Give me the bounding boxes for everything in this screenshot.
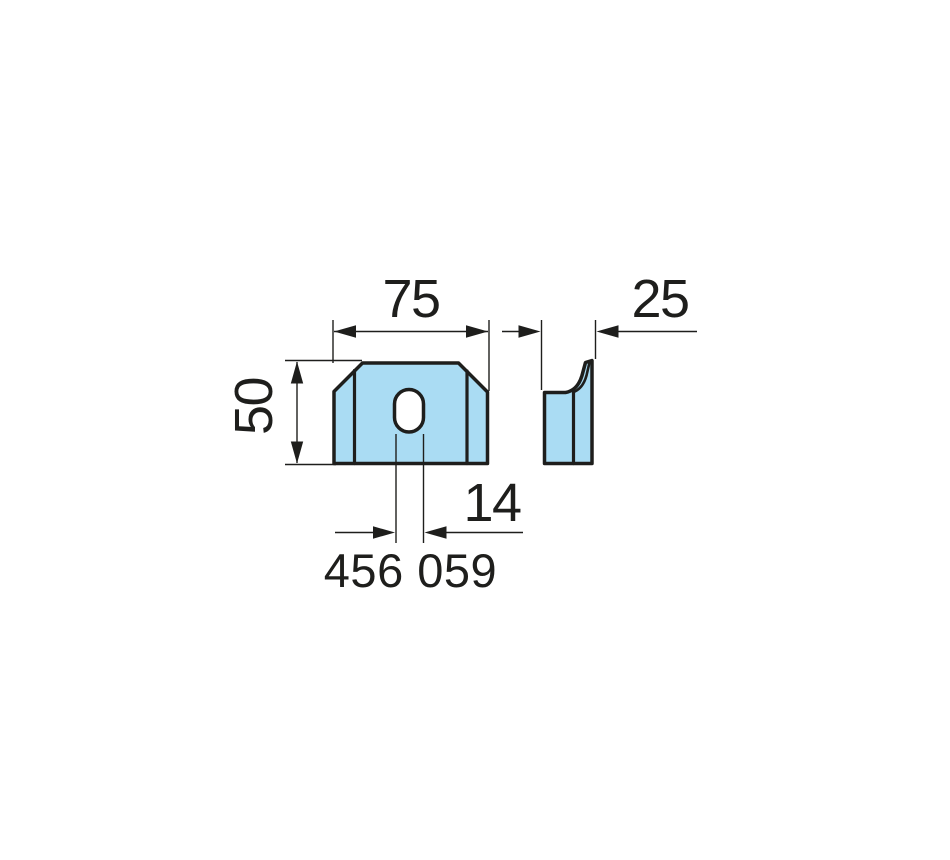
height-dim-label: 50 [224, 378, 284, 435]
width-dim-label: 75 [382, 269, 439, 329]
front-view [334, 363, 488, 464]
part-number: 456 059 [324, 544, 497, 597]
depth-arrow-right [597, 325, 619, 337]
slot-arrow-left [373, 526, 395, 538]
width-arrow-left [334, 325, 356, 337]
side-view [545, 361, 593, 464]
width-arrow-right [466, 325, 488, 337]
depth-arrow-left [519, 325, 541, 337]
technical-drawing: 75 25 [0, 0, 950, 860]
side-view-outline [545, 361, 593, 464]
height-arrow-bottom [291, 442, 303, 464]
slot-dim-label: 14 [463, 473, 521, 533]
slot-arrow-right [425, 526, 447, 538]
drawing-canvas: 75 25 [0, 0, 950, 860]
stroke-layer: 75 25 [224, 269, 697, 597]
dimension-depth: 25 [502, 269, 697, 390]
height-arrow-top [291, 362, 303, 384]
slot-hole [395, 390, 424, 433]
depth-dim-label: 25 [631, 269, 688, 329]
